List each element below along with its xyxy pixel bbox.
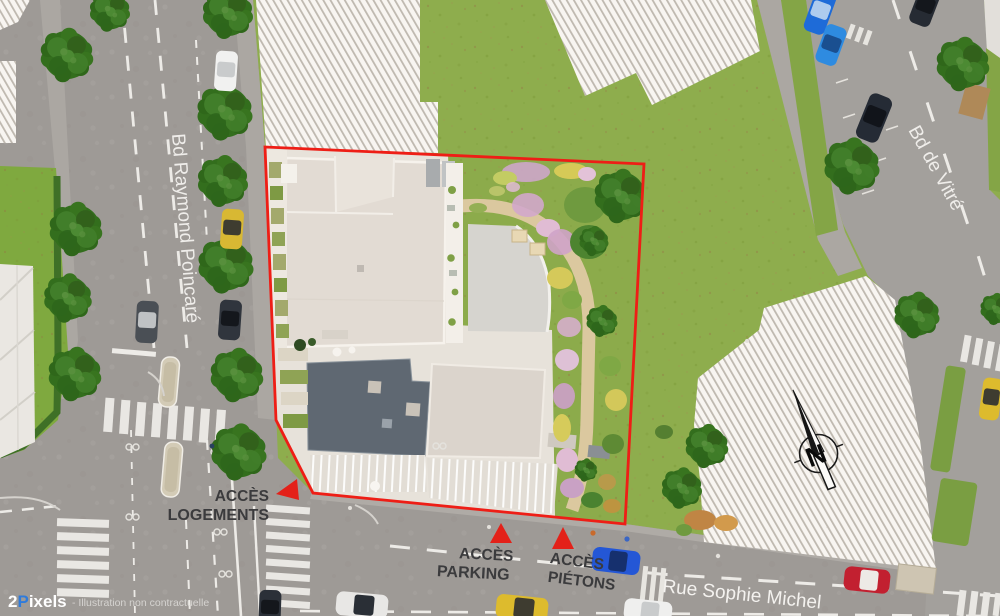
- svg-text:ACCÈS: ACCÈS: [459, 545, 514, 565]
- svg-text:ACCÈS: ACCÈS: [215, 488, 269, 505]
- svg-text:- Illustration non contractuel: - Illustration non contractuelle: [72, 597, 209, 609]
- svg-text:LOGEMENTS: LOGEMENTS: [168, 507, 270, 524]
- svg-text:2Pixels: 2Pixels: [8, 592, 67, 611]
